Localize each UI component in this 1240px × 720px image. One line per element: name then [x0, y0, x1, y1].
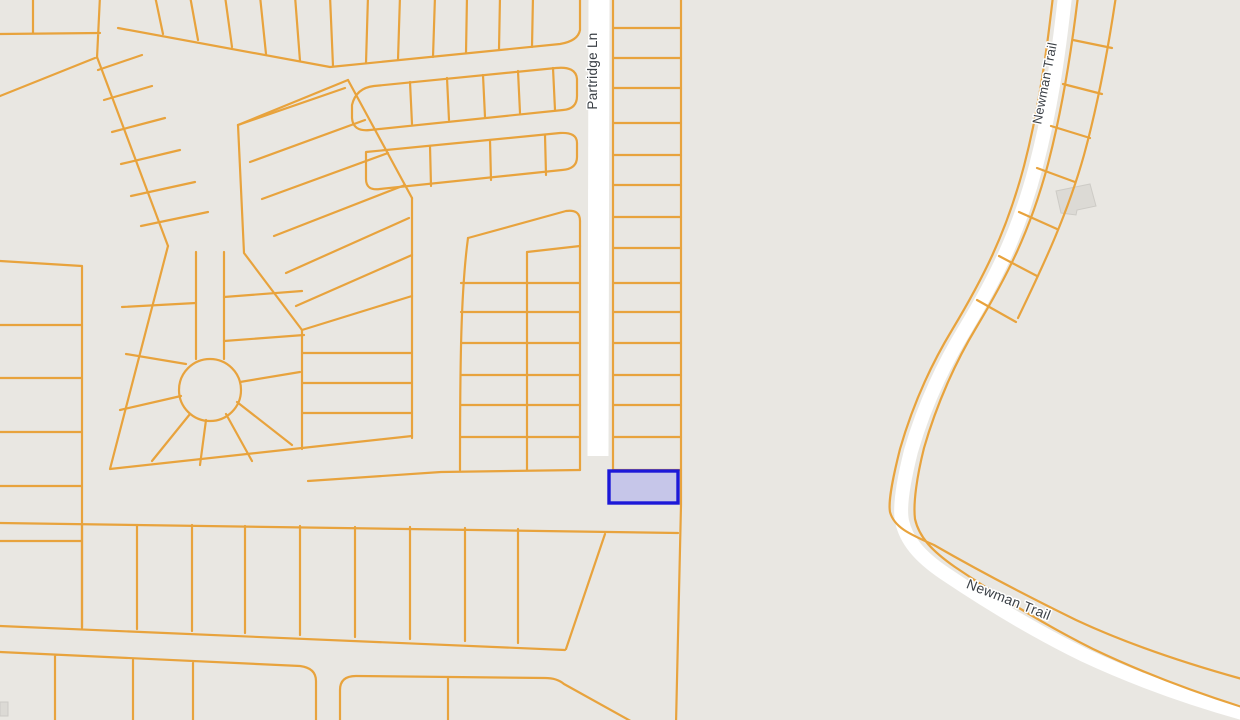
parcel-map-svg: Partridge LnNewman TrailNewman Trail — [0, 0, 1240, 720]
building-footprint-bottom-left — [0, 702, 8, 716]
street-label-partridge-ln: Partridge Ln — [585, 32, 600, 109]
map-canvas[interactable]: Partridge LnNewman TrailNewman Trail — [0, 0, 1240, 720]
highlighted-parcel[interactable] — [609, 471, 678, 503]
